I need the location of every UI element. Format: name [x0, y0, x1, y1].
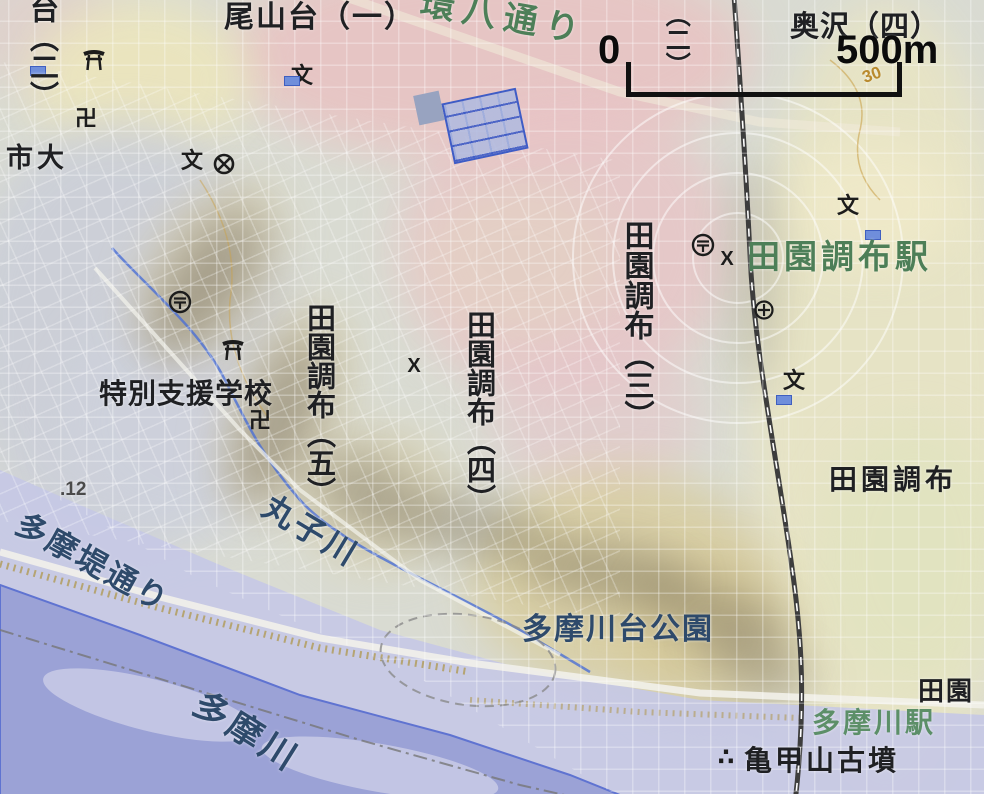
label-dai-ni-left-edge: 台（二） [26, 0, 56, 110]
label-oyamadai-1: 尾山台（一） [224, 2, 416, 34]
figure-bottom-margin [0, 794, 984, 803]
label-tamazutsumi-dori: 多摩堤通り [10, 508, 174, 619]
label-denenchofu-3: 田園調布（三） [620, 220, 652, 430]
label-tamagawa-station: 多摩川駅 [812, 708, 936, 737]
label-denenchofu-station: 田園調布駅 [747, 240, 932, 275]
label-denen-bottom-right: 田園 [918, 678, 974, 705]
label-denenchofu-5: 田園調布（五） [303, 303, 333, 506]
label-spot-elevation-12: .12 [60, 480, 86, 500]
label-kanpachi-dori: 環八通り [418, 0, 590, 50]
label-tamagawa-river: 多摩川 [187, 686, 306, 779]
scale-zero-label: 0 [598, 28, 620, 73]
scale-bar-line [626, 62, 902, 97]
label-denenchofu-4: 田園調布（四） [463, 310, 493, 513]
map-labels: 尾山台（一）奥沢（四）（二）台（二）市大特別支援学校田園調布（五）田園調布（四）… [0, 0, 984, 803]
label-kamenokoyama-kofun: 亀甲山古墳 [744, 746, 899, 775]
label-tokubetsu-shien-gakko: 特別支援学校 [99, 379, 273, 408]
map-canvas[interactable]: 卍卍文文文文XX∴ 尾山台（一）奥沢（四）（二）台（二）市大特別支援学校田園調布… [0, 0, 984, 803]
label-denenchofu-right: 田園調布 [829, 465, 957, 494]
label-shidai: 市大 [6, 144, 68, 172]
label-tamagawadai-park: 多摩川台公園 [522, 614, 714, 646]
